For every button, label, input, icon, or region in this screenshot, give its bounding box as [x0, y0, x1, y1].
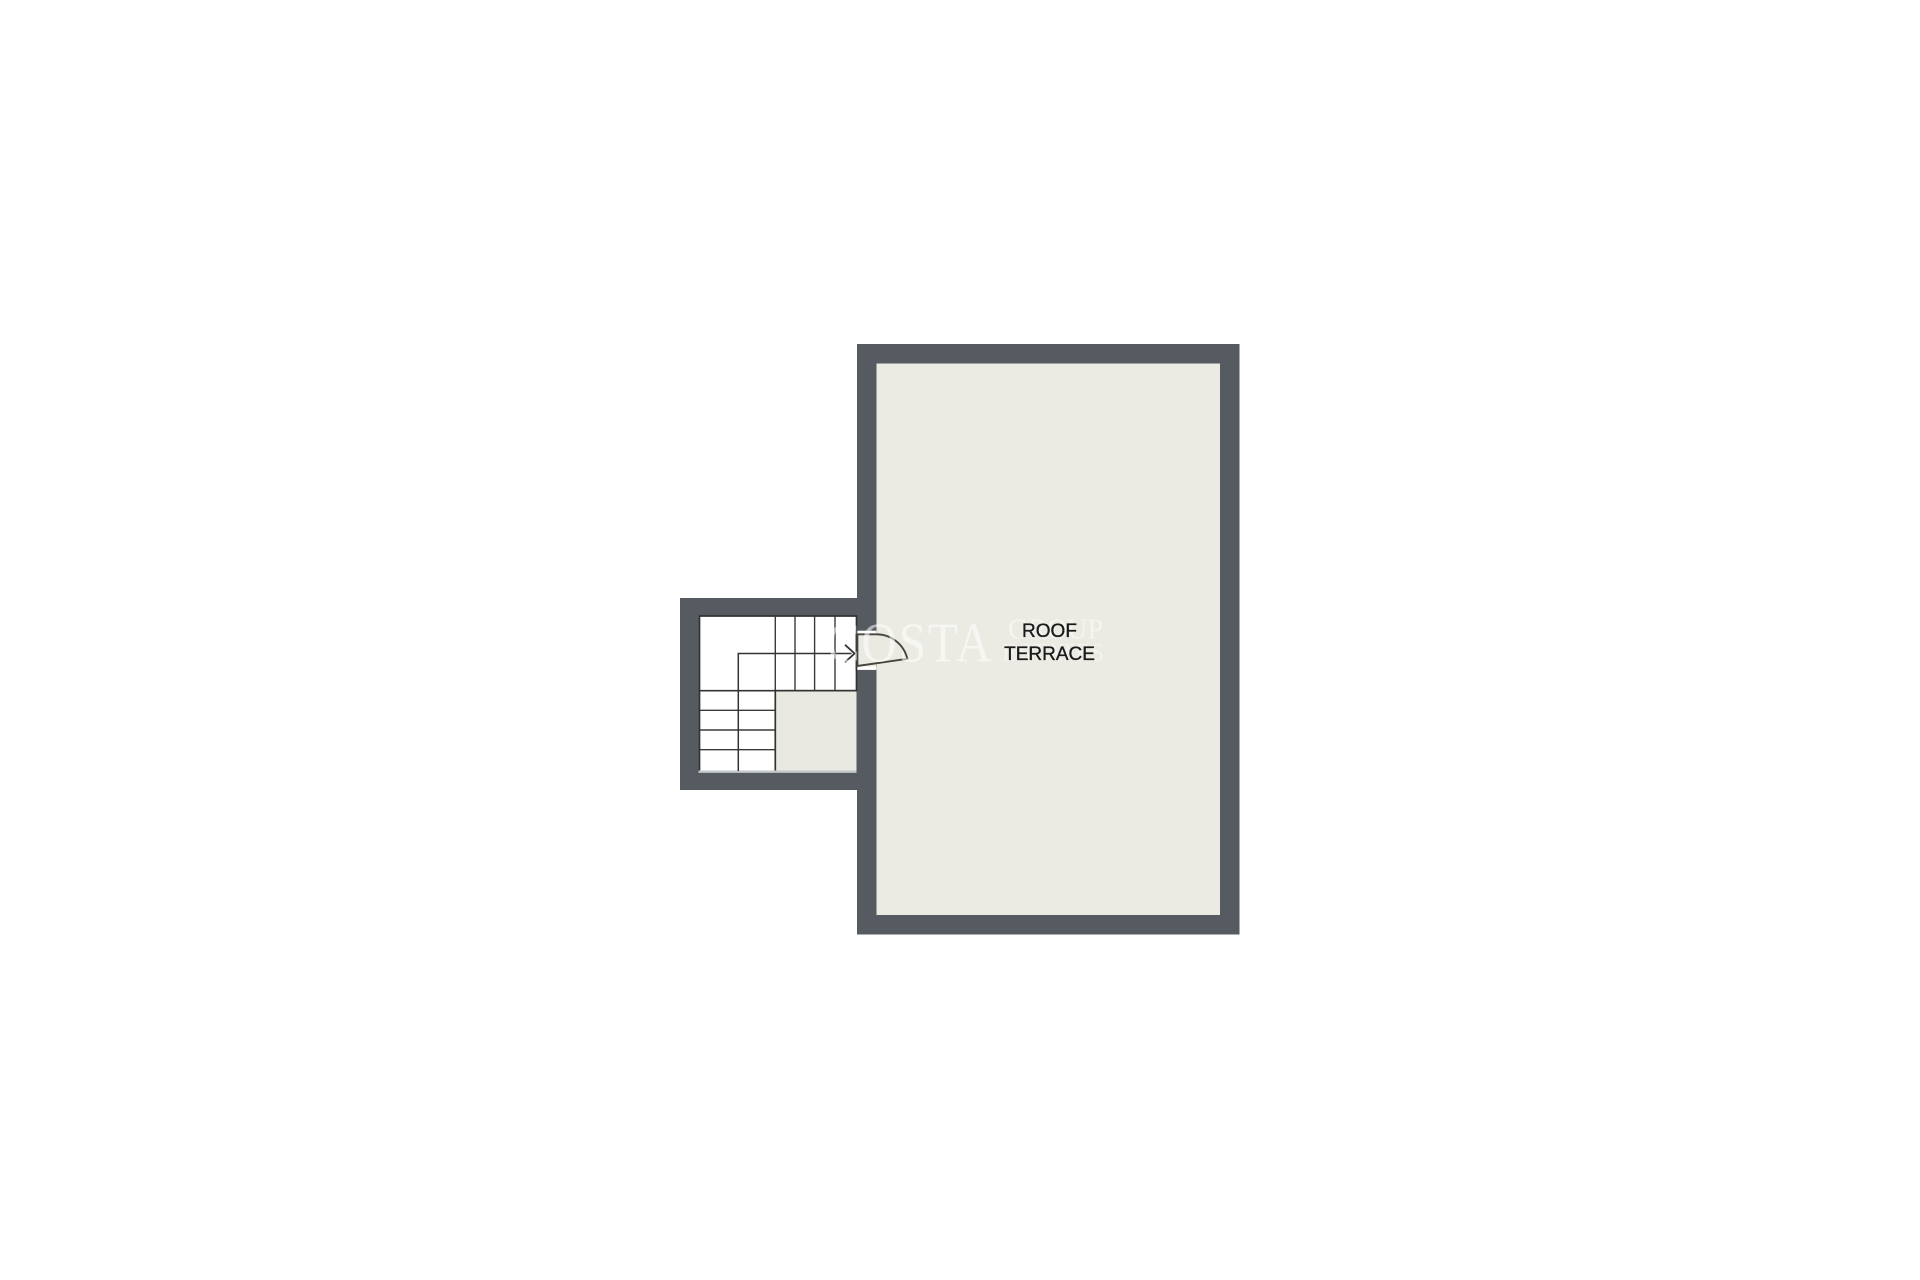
svg-text:TERRACE: TERRACE [1004, 644, 1095, 665]
svg-text:ROOF: ROOF [1022, 621, 1077, 642]
svg-text:COSTA: COSTA [827, 613, 993, 675]
